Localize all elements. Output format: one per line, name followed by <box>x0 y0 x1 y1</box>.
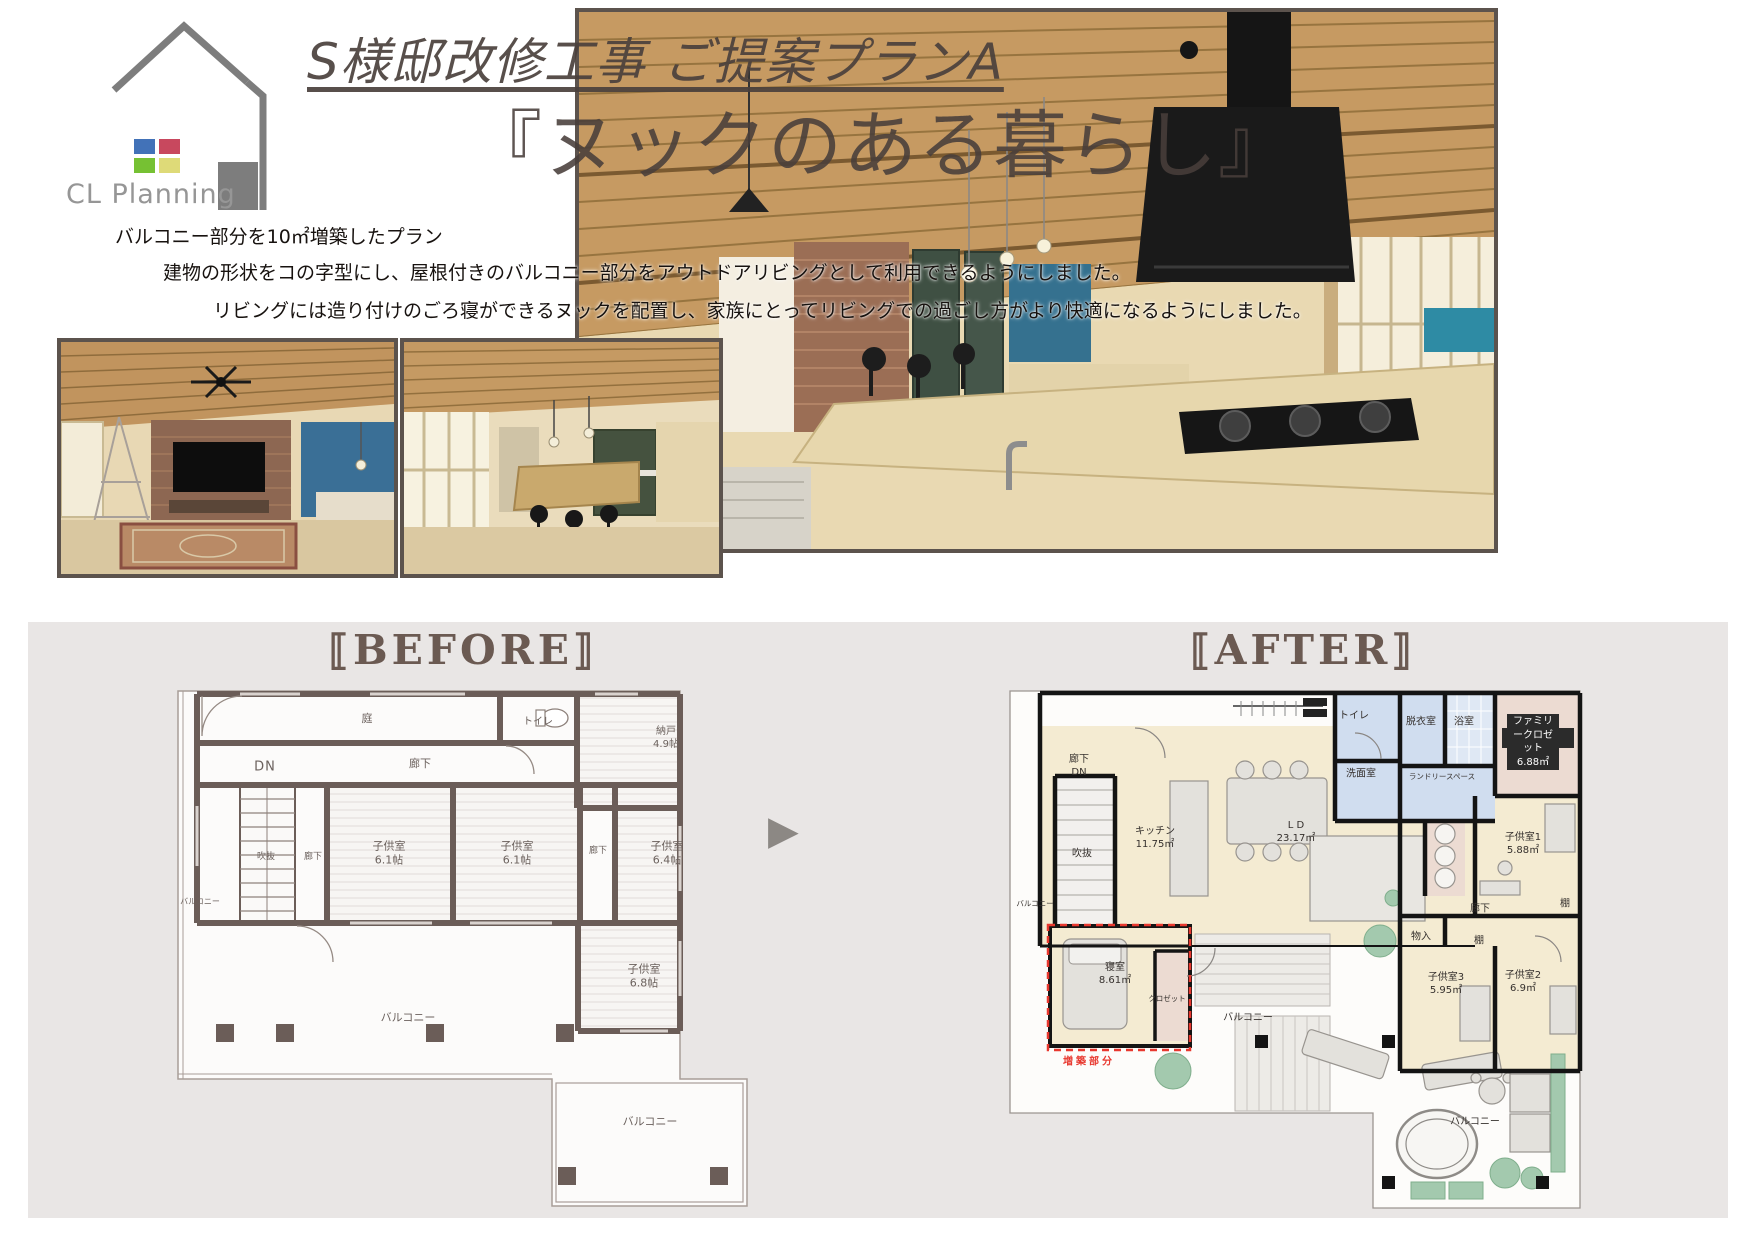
before-heading: ⟦BEFORE⟧ <box>313 626 613 674</box>
render-dining-thumbnail <box>400 338 723 578</box>
room-label-hall-right: 廊下 <box>589 846 607 858</box>
room-label-hall-left: 廊下 <box>304 852 322 864</box>
room-label-family-closet: ファミリークロゼット 6.88㎡ <box>1507 714 1559 770</box>
room-label-hall-top: 廊下 <box>409 757 431 771</box>
room-label-kids1: 子供室 6.1帖 <box>373 840 406 869</box>
after-heading: ⟦AFTER⟧ <box>1153 626 1453 674</box>
before-after-arrow-icon: ▶ <box>768 808 799 854</box>
description-line-3: リビングには造り付けのごろ寝ができるヌックを配置し、家族にとってリビングでの過ご… <box>213 296 1312 323</box>
room-label-storage: 納戸 4.9帖 <box>653 725 679 751</box>
room-label-hall-dn: 廊下 DN <box>1069 753 1089 779</box>
room-label-balcony-left-after: バルコニー <box>1016 899 1053 909</box>
render-living-thumbnail <box>57 338 398 578</box>
page-title: S様邸改修工事 ご提案プランA <box>307 22 1004 94</box>
company-name: CL Planning <box>66 179 236 210</box>
room-label-kids3-after: 子供室3 5.95㎡ <box>1428 971 1464 997</box>
description-line-1: バルコニー部分を10㎡増築したプラン <box>115 222 443 249</box>
floorplan-after: 廊下 DN キッチン 11.75㎡ L D 23.17㎡ トイレ 脱衣室 浴室 … <box>1005 686 1585 1216</box>
room-label-ld: L D 23.17㎡ <box>1277 819 1316 845</box>
room-label-kids2-after: 子供室2 6.9㎡ <box>1505 969 1541 995</box>
page-subtitle: 『ヌックのある暮らし』 <box>468 86 1293 193</box>
room-label-laundry: ランドリースペース <box>1409 772 1475 782</box>
room-label-balcony-left: バルコニー <box>180 897 220 907</box>
room-label-balcony-bottom: バルコニー <box>623 1115 678 1129</box>
company-logo: CL Planning <box>52 10 297 212</box>
comparison-panel: ⟦BEFORE⟧ ⟦AFTER⟧ ▶ <box>28 622 1728 1218</box>
room-label-toilet-after: トイレ <box>1339 710 1369 723</box>
room-label-shelf-2: 棚 <box>1560 898 1570 911</box>
room-label-toilet: トイレ <box>523 716 553 729</box>
room-label-washroom: 洗面室 <box>1346 768 1376 781</box>
room-label-void: 吹抜 <box>257 852 275 864</box>
room-label-garden: 庭 <box>362 712 373 726</box>
room-label-dressing: 脱衣室 <box>1406 716 1436 729</box>
room-label-balcony-lower: バルコニー <box>1450 1116 1500 1129</box>
room-label-shelf-1: 棚 <box>1474 935 1484 948</box>
room-label-kitchen: キッチン 11.75㎡ <box>1135 825 1175 851</box>
extension-annotation: 増築部分 <box>1063 1056 1115 1069</box>
room-label-kids4: 子供室 6.8帖 <box>628 963 661 992</box>
room-label-storage-after: 物入 <box>1411 931 1431 944</box>
room-label-kids1-after: 子供室1 5.88㎡ <box>1505 831 1541 857</box>
room-label-bedroom: 寝室 8.61㎡ <box>1099 961 1131 987</box>
room-label-hall-after: 廊下 <box>1470 903 1490 916</box>
room-label-void-after: 吹抜 <box>1072 848 1092 861</box>
room-label-dn: DN <box>254 760 276 777</box>
room-label-balcony-deck: バルコニー <box>1223 1012 1273 1025</box>
room-label-bath: 浴室 <box>1454 716 1474 729</box>
room-label-kids2: 子供室 6.1帖 <box>501 840 534 869</box>
description-line-2: 建物の形状をコの字型にし、屋根付きのバルコニー部分をアウトドアリビングとして利用… <box>163 258 1131 285</box>
floorplan-before: 庭 トイレ 納戸 4.9帖 DN 廊下 吹抜 廊下 子供室 6.1帖 子供室 6… <box>170 686 760 1213</box>
room-label-closet: クロゼット <box>1148 994 1186 1004</box>
room-label-balcony-center: バルコニー <box>381 1011 436 1025</box>
room-label-kids3: 子供室 6.4帖 <box>651 840 684 869</box>
